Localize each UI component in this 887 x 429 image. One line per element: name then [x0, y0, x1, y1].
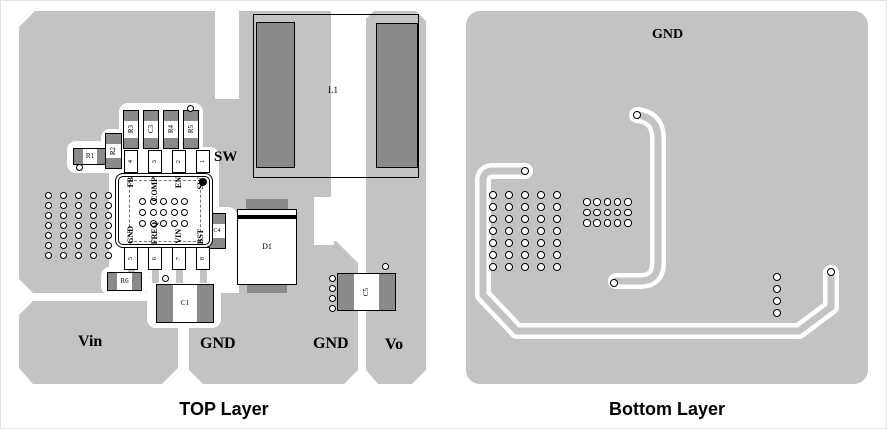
via — [521, 203, 529, 211]
via — [521, 263, 529, 271]
via — [505, 227, 513, 235]
pcb-layout-figure: L1 R1 R2 R3 C3 R4 R5 C4 — [0, 0, 887, 429]
via — [610, 279, 618, 287]
via — [537, 263, 545, 271]
via — [505, 263, 513, 271]
bottom-layer-traces — [1, 1, 887, 429]
via — [827, 268, 835, 276]
ic-pin-label-FREQ: FREQ — [151, 222, 159, 244]
ref-des: R5 — [188, 125, 195, 133]
via — [521, 191, 529, 199]
via — [553, 251, 561, 259]
ic-pin-label-COMP: COMP — [151, 177, 159, 201]
via — [521, 167, 529, 175]
via — [553, 263, 561, 271]
via — [553, 215, 561, 223]
top-layer-caption: TOP Layer — [9, 400, 439, 418]
via — [773, 297, 781, 305]
ref-des: R1 — [86, 153, 94, 160]
ref-des: R4 — [168, 125, 175, 133]
via — [489, 263, 497, 271]
via — [583, 219, 591, 227]
via — [773, 309, 781, 317]
via — [583, 198, 591, 206]
via — [773, 285, 781, 293]
ref-des: R6 — [120, 278, 128, 285]
via — [593, 198, 601, 206]
ic-pin-label-BST: BST — [197, 229, 205, 244]
via — [604, 219, 612, 227]
via — [489, 215, 497, 223]
via — [553, 203, 561, 211]
ref-des: R3 — [128, 125, 135, 133]
via — [604, 198, 612, 206]
via — [537, 251, 545, 259]
via — [521, 239, 529, 247]
via — [489, 203, 497, 211]
via — [537, 227, 545, 235]
ref-des: C5 — [363, 288, 370, 296]
via — [593, 219, 601, 227]
via — [489, 239, 497, 247]
via — [553, 191, 561, 199]
via — [521, 215, 529, 223]
via — [624, 209, 632, 217]
ic-pin-label-EN: EN — [175, 177, 183, 188]
bottom-layer-caption: Bottom Layer — [466, 400, 868, 418]
via — [553, 227, 561, 235]
via — [537, 215, 545, 223]
via — [624, 198, 632, 206]
via — [489, 191, 497, 199]
via — [505, 239, 513, 247]
via — [537, 191, 545, 199]
via — [505, 191, 513, 199]
via — [773, 273, 781, 281]
ref-des: D1 — [262, 243, 272, 251]
via — [489, 227, 497, 235]
ref-des: C3 — [148, 125, 155, 133]
ic-pin-label-GND: GND — [127, 226, 135, 244]
via — [505, 215, 513, 223]
via — [624, 219, 632, 227]
via — [537, 203, 545, 211]
ref-des: R2 — [110, 147, 117, 155]
via — [604, 209, 612, 217]
via — [521, 227, 529, 235]
bottom-gnd-label: GND — [652, 28, 683, 42]
via — [489, 251, 497, 259]
ic-pin-label-VIN: VIN — [175, 229, 183, 244]
via — [537, 239, 545, 247]
via — [505, 203, 513, 211]
via — [553, 239, 561, 247]
via — [593, 209, 601, 217]
via — [583, 209, 591, 217]
via — [614, 219, 622, 227]
via — [614, 198, 622, 206]
ref-des: C4 — [213, 228, 220, 234]
via — [505, 251, 513, 259]
ref-des: C1 — [181, 300, 189, 307]
ic-pin-label-SW: SW — [197, 177, 205, 189]
ic-pin-label-FB: FB — [127, 177, 135, 187]
via — [521, 251, 529, 259]
via — [633, 111, 641, 119]
bottom-trace-middle — [616, 115, 658, 281]
